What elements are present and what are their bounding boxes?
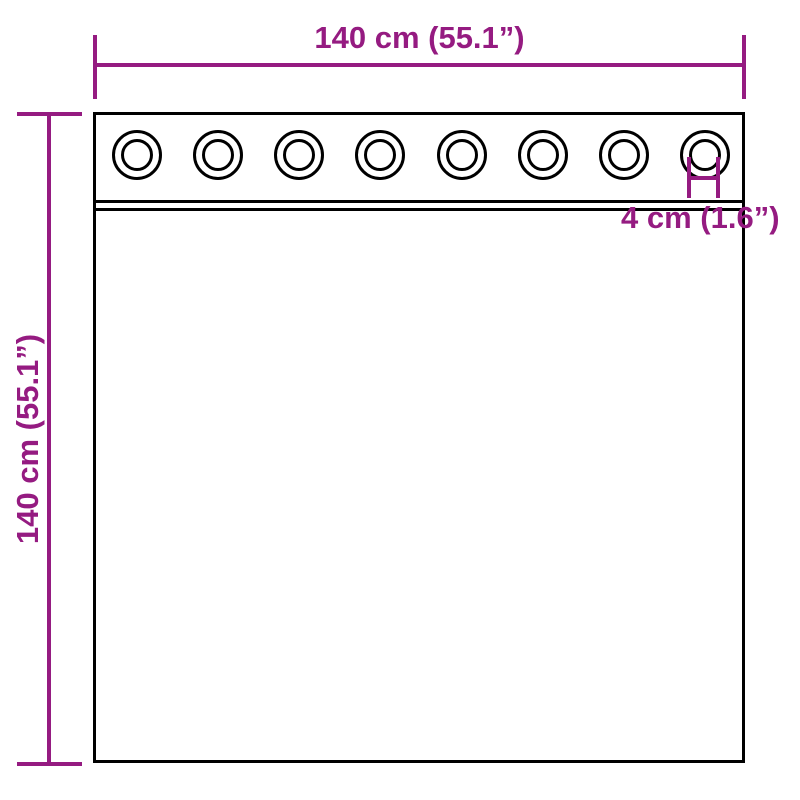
width-dimension-label: 140 cm (55.1”) [93,21,746,55]
grommet-eyelet [193,130,243,180]
height-dimension-label: 140 cm (55.1”) [11,334,45,544]
grommet-eyelet [599,130,649,180]
width-dimension-tick-right [742,35,746,99]
curtain-dimension-diagram: 140 cm (55.1”) 140 cm (55.1”) 4 cm (1.6”… [0,0,800,800]
grommet-eyelet [274,130,324,180]
width-dimension-tick-left [93,35,97,99]
grommet-dimension-bar [687,176,720,180]
grommet-eyelet [518,130,568,180]
grommet-dimension-label: 4 cm (1.6”) [621,201,780,235]
height-dimension-tick-bottom [17,762,82,766]
grommet-eyelet [355,130,405,180]
grommet-rail [96,115,742,200]
height-dimension-line [47,113,51,766]
grommet-eyelet [437,130,487,180]
width-dimension-line [93,63,746,67]
height-dimension-tick-top [17,112,82,116]
grommet-eyelet [112,130,162,180]
